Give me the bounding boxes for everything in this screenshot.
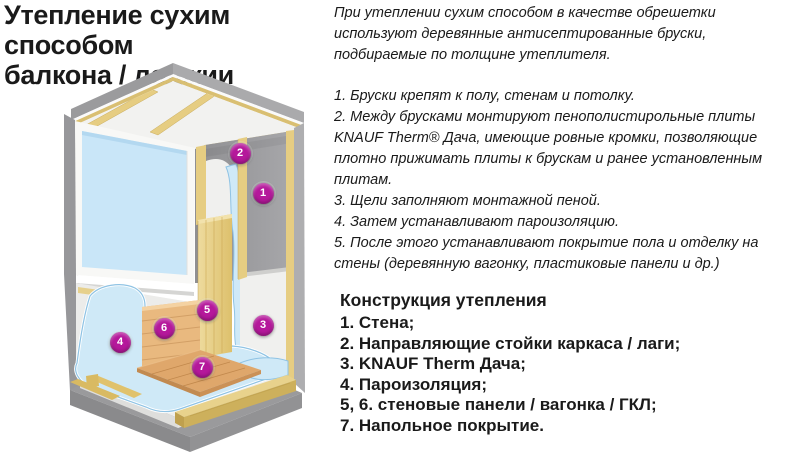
- diagram-marker-3: 3: [253, 315, 274, 336]
- diagram-marker-1: 1: [253, 183, 274, 204]
- step-item: 5. После этого устанавливают покрытие по…: [334, 233, 798, 275]
- step-item: 2. Между брусками монтируют пенополистир…: [334, 107, 798, 191]
- legend-item: 4. Пароизоляция;: [340, 375, 798, 396]
- intro-paragraph: При утеплении сухим способом в качестве …: [334, 3, 798, 66]
- step-item: 4. Затем устанавливают пароизоляцию.: [334, 212, 798, 233]
- steps-list: 1. Бруски крепят к полу, стенам и потолк…: [334, 86, 798, 275]
- legend-item: 1. Стена;: [340, 313, 798, 334]
- step-item: 3. Щели заполняют монтажной пеной.: [334, 191, 798, 212]
- step-item: 1. Бруски крепят к полу, стенам и потолк…: [334, 86, 798, 107]
- article-column: При утеплении сухим способом в качестве …: [334, 3, 798, 436]
- legend-item: 7. Напольное покрытие.: [340, 416, 798, 437]
- diagram-marker-5: 5: [197, 300, 218, 321]
- wall-batten-right: [286, 130, 294, 384]
- legend-heading: Конструкция утепления: [340, 289, 798, 311]
- window-glass: [82, 131, 187, 275]
- corner-plank-column: [198, 214, 232, 358]
- legend-item: 5, 6. стеновые панели / вагонка / ГКЛ;: [340, 395, 798, 416]
- insulation-diagram: 1234567: [0, 60, 340, 455]
- diagram-marker-2: 2: [230, 143, 251, 164]
- legend-item: 3. KNAUF Therm Дача;: [340, 354, 798, 375]
- corner-batten: [196, 145, 206, 225]
- legend-item: 2. Направляющие стойки каркаса / лаги;: [340, 334, 798, 355]
- diagram-marker-4: 4: [110, 332, 131, 353]
- diagram-marker-6: 6: [154, 318, 175, 339]
- page: Утепление сухим способом балкона / лоджи…: [0, 0, 800, 455]
- diagram-marker-7: 7: [192, 357, 213, 378]
- title-line-1: Утепление сухим способом: [4, 0, 334, 60]
- diagram-illustration: [0, 60, 340, 455]
- legend: Конструкция утепления 1. Стена; 2. Напра…: [334, 289, 798, 436]
